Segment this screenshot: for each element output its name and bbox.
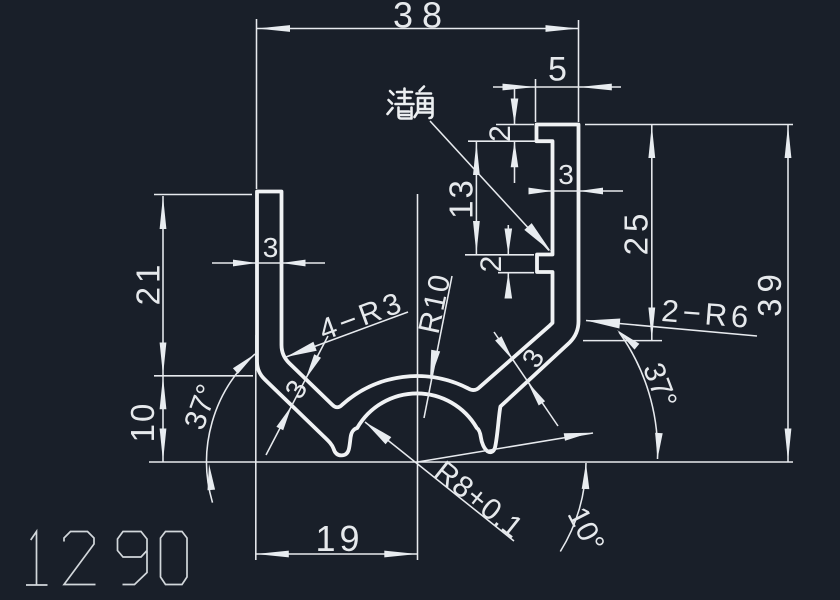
svg-text:2−R6: 2−R6: [660, 293, 753, 335]
svg-text:2: 2: [484, 125, 517, 142]
svg-text:25: 25: [617, 209, 654, 256]
svg-text:21: 21: [130, 261, 167, 306]
svg-text:5: 5: [548, 51, 567, 89]
svg-text:3: 3: [558, 159, 574, 190]
svg-text:39: 39: [751, 268, 788, 317]
svg-text:13: 13: [443, 178, 480, 219]
svg-text:3: 3: [263, 232, 279, 263]
svg-text:2: 2: [475, 256, 508, 273]
svg-text:10: 10: [124, 402, 161, 443]
svg-text:19: 19: [315, 518, 363, 559]
svg-text:38: 38: [393, 0, 451, 36]
